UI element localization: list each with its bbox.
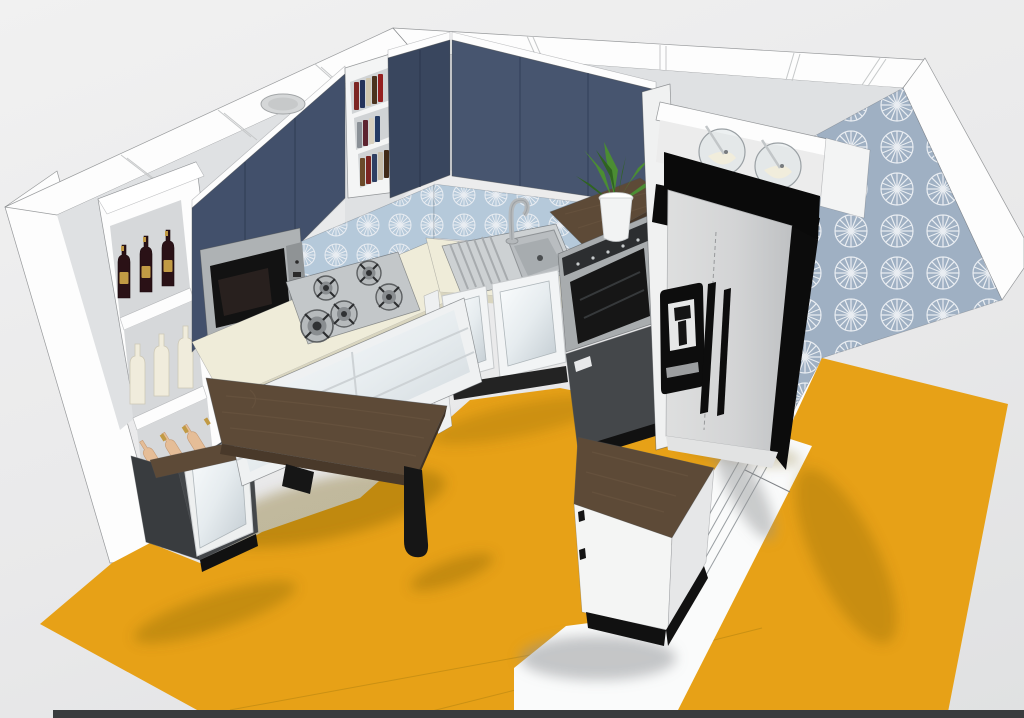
kitchen-render: White room walls seen from above Blue fa… <box>0 0 1024 718</box>
round-vent: Round vent on cabinet top <box>261 94 305 114</box>
navy-corner <box>388 40 450 198</box>
ice-dispenser <box>660 283 705 394</box>
3d-viewport[interactable]: White room walls seen from above Blue fa… <box>0 0 1024 718</box>
viewport-bottom-bar: Dark viewport bottom edge <box>53 710 1024 718</box>
